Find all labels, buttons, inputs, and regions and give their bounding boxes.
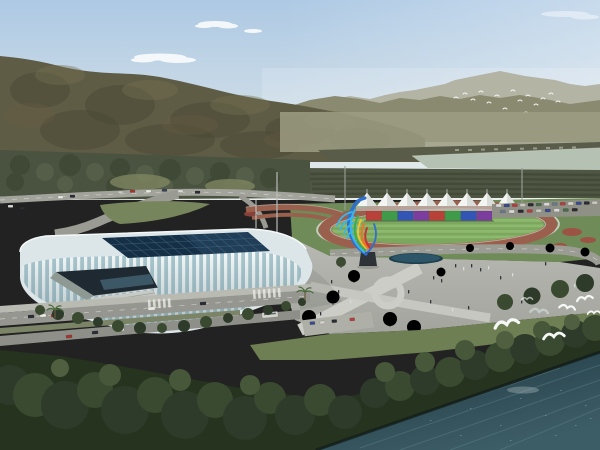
sculpture-pedestal xyxy=(359,252,377,266)
car xyxy=(8,205,13,208)
car xyxy=(500,210,506,213)
tree xyxy=(240,375,260,395)
plaza-tree xyxy=(546,244,555,253)
pedestrian xyxy=(338,290,339,294)
car xyxy=(512,204,518,207)
car xyxy=(320,321,325,324)
tree xyxy=(72,312,84,324)
plaza-tree xyxy=(506,242,514,250)
pedestrian xyxy=(452,308,453,312)
tree xyxy=(455,340,475,360)
car xyxy=(545,209,551,212)
car xyxy=(536,209,542,212)
car xyxy=(350,318,355,321)
car xyxy=(563,209,569,212)
car xyxy=(58,196,63,199)
banner-panel xyxy=(477,211,493,221)
banner-panel xyxy=(429,211,445,221)
car xyxy=(200,302,206,305)
car xyxy=(148,307,155,311)
tree xyxy=(263,305,273,315)
tree xyxy=(112,320,124,332)
tree xyxy=(415,352,435,372)
car xyxy=(130,190,135,193)
car xyxy=(518,210,524,213)
tree xyxy=(223,313,233,323)
aerial-rendering xyxy=(0,0,600,450)
fountain-pool xyxy=(389,253,443,264)
car xyxy=(332,319,337,322)
car xyxy=(509,210,515,213)
tree xyxy=(134,322,146,334)
pedestrian xyxy=(574,284,575,288)
car xyxy=(527,210,533,213)
banner-panel xyxy=(461,211,477,221)
plaza-tree xyxy=(466,244,474,252)
car xyxy=(544,203,550,206)
car xyxy=(20,207,25,210)
tree xyxy=(200,316,212,328)
car xyxy=(572,208,578,211)
tree xyxy=(281,301,291,311)
car xyxy=(66,335,72,339)
car xyxy=(28,315,34,318)
pedestrian xyxy=(320,312,321,316)
car xyxy=(520,204,526,207)
pedestrian xyxy=(331,280,332,284)
car xyxy=(504,204,510,207)
car xyxy=(178,190,183,193)
scene xyxy=(0,0,600,450)
car xyxy=(70,195,75,198)
tree xyxy=(169,369,191,391)
banner-panel xyxy=(382,211,398,221)
banner-panel xyxy=(366,211,382,221)
plaza-tree xyxy=(437,268,446,277)
pedestrian xyxy=(471,264,472,268)
cloud xyxy=(244,29,262,33)
interchange-lawn xyxy=(100,201,210,224)
car xyxy=(552,203,558,206)
plaza-tree xyxy=(581,248,590,257)
pedestrian xyxy=(468,306,469,310)
roadside-tree xyxy=(551,280,569,298)
car xyxy=(162,189,167,192)
car xyxy=(584,202,590,205)
tree xyxy=(99,364,121,386)
roadside-tree xyxy=(497,294,513,310)
tree xyxy=(35,305,45,315)
water-reflection xyxy=(507,387,539,394)
tree xyxy=(51,359,69,377)
tree xyxy=(242,308,254,320)
banner-panel xyxy=(445,211,461,221)
roadside-tree xyxy=(524,288,541,305)
car xyxy=(195,191,200,194)
car xyxy=(576,202,582,205)
car xyxy=(592,201,598,204)
car xyxy=(536,203,542,206)
pedestrian xyxy=(441,279,442,283)
pedestrian xyxy=(433,276,434,280)
pedestrian xyxy=(500,276,501,280)
tree xyxy=(178,320,190,332)
car xyxy=(554,209,560,212)
banner-panel xyxy=(413,211,429,221)
car xyxy=(310,321,315,324)
roadside-tree xyxy=(576,274,594,292)
tree xyxy=(375,362,395,382)
car xyxy=(528,203,534,206)
tree xyxy=(157,323,167,333)
banner-panel xyxy=(398,211,414,221)
tree xyxy=(564,314,580,330)
car xyxy=(92,331,98,335)
pedestrian xyxy=(430,300,431,304)
tree xyxy=(533,321,551,339)
car xyxy=(568,202,574,205)
tree xyxy=(496,331,514,349)
pedestrian xyxy=(463,267,464,271)
pedestrian xyxy=(408,290,409,294)
pedestrian xyxy=(455,264,456,268)
car xyxy=(118,191,123,194)
pedestrian xyxy=(480,268,481,272)
pedestrian xyxy=(512,273,513,277)
pedestrian xyxy=(488,266,489,270)
tree xyxy=(93,317,103,327)
car xyxy=(560,202,566,205)
car xyxy=(146,190,151,193)
pedestrian xyxy=(350,300,351,304)
banner-wall xyxy=(364,211,494,222)
upper-roads xyxy=(0,189,335,234)
tree xyxy=(328,395,362,429)
car xyxy=(496,204,502,207)
pedestrian xyxy=(545,262,546,266)
